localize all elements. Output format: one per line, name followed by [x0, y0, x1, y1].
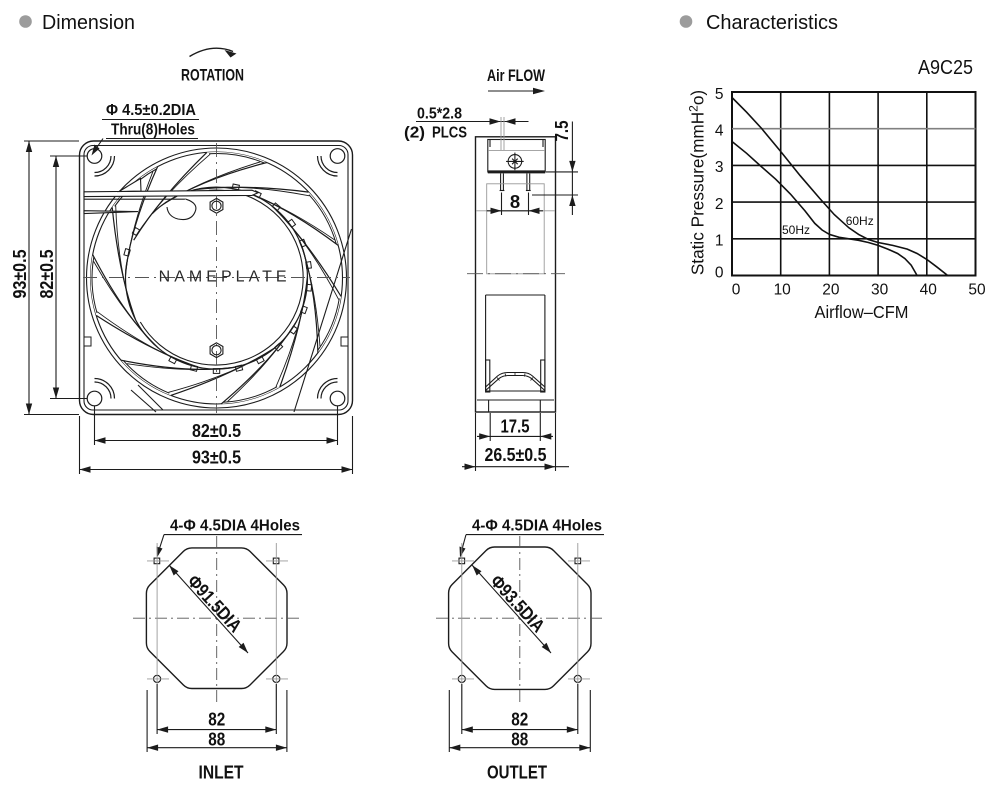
svg-text:Φ 4.5±0.2DIA: Φ 4.5±0.2DIA [106, 102, 196, 119]
svg-text:40: 40 [920, 282, 938, 299]
svg-text:26.5±0.5: 26.5±0.5 [485, 444, 547, 465]
svg-text:2: 2 [715, 196, 724, 213]
svg-text:Air FLOW: Air FLOW [487, 66, 546, 85]
svg-text:50: 50 [968, 282, 986, 299]
svg-text:82: 82 [208, 709, 225, 730]
svg-text:INLET: INLET [199, 763, 244, 783]
svg-text:1: 1 [715, 233, 724, 250]
svg-text:4-Φ 4.5DIA 4Holes: 4-Φ 4.5DIA 4Holes [472, 518, 602, 535]
svg-text:88: 88 [208, 728, 225, 749]
svg-text:82±0.5: 82±0.5 [36, 250, 57, 299]
svg-text:20: 20 [822, 282, 840, 299]
svg-text:88: 88 [511, 728, 528, 749]
svg-text:OUTLET: OUTLET [487, 763, 547, 783]
svg-text:93±0.5: 93±0.5 [192, 447, 241, 468]
svg-text:0: 0 [715, 265, 724, 282]
svg-text:82±0.5: 82±0.5 [192, 420, 241, 441]
svg-text:3: 3 [715, 159, 724, 176]
svg-text:93±0.5: 93±0.5 [9, 250, 30, 299]
svg-text:17.5: 17.5 [501, 416, 530, 437]
svg-text:5: 5 [715, 86, 724, 103]
svg-text:(2): (2) [404, 125, 425, 142]
svg-text:4-Φ 4.5DIA 4Holes: 4-Φ 4.5DIA 4Holes [170, 518, 300, 535]
svg-text:4: 4 [715, 123, 724, 140]
svg-text:30: 30 [871, 282, 889, 299]
svg-text:Characteristics: Characteristics [706, 11, 838, 34]
svg-text:7.5: 7.5 [551, 121, 572, 142]
svg-text:Static Pressure(mmH2o): Static Pressure(mmH2o) [687, 90, 708, 275]
svg-text:60Hz: 60Hz [846, 214, 874, 228]
svg-text:ROTATION: ROTATION [181, 66, 244, 85]
svg-text:PLCS: PLCS [432, 125, 467, 142]
svg-text:82: 82 [511, 709, 528, 730]
svg-text:0: 0 [732, 282, 741, 299]
svg-text:Airflow–CFM: Airflow–CFM [815, 302, 909, 322]
svg-text:8: 8 [510, 191, 520, 212]
svg-text:NAMEPLATE: NAMEPLATE [159, 269, 287, 286]
svg-text:Dimension: Dimension [42, 11, 135, 34]
svg-text:50Hz: 50Hz [782, 223, 810, 237]
svg-text:0.5*2.8: 0.5*2.8 [417, 106, 462, 123]
svg-text:A9C25: A9C25 [918, 57, 973, 79]
svg-text:10: 10 [774, 282, 792, 299]
svg-text:Thru(8)Holes: Thru(8)Holes [111, 122, 195, 139]
